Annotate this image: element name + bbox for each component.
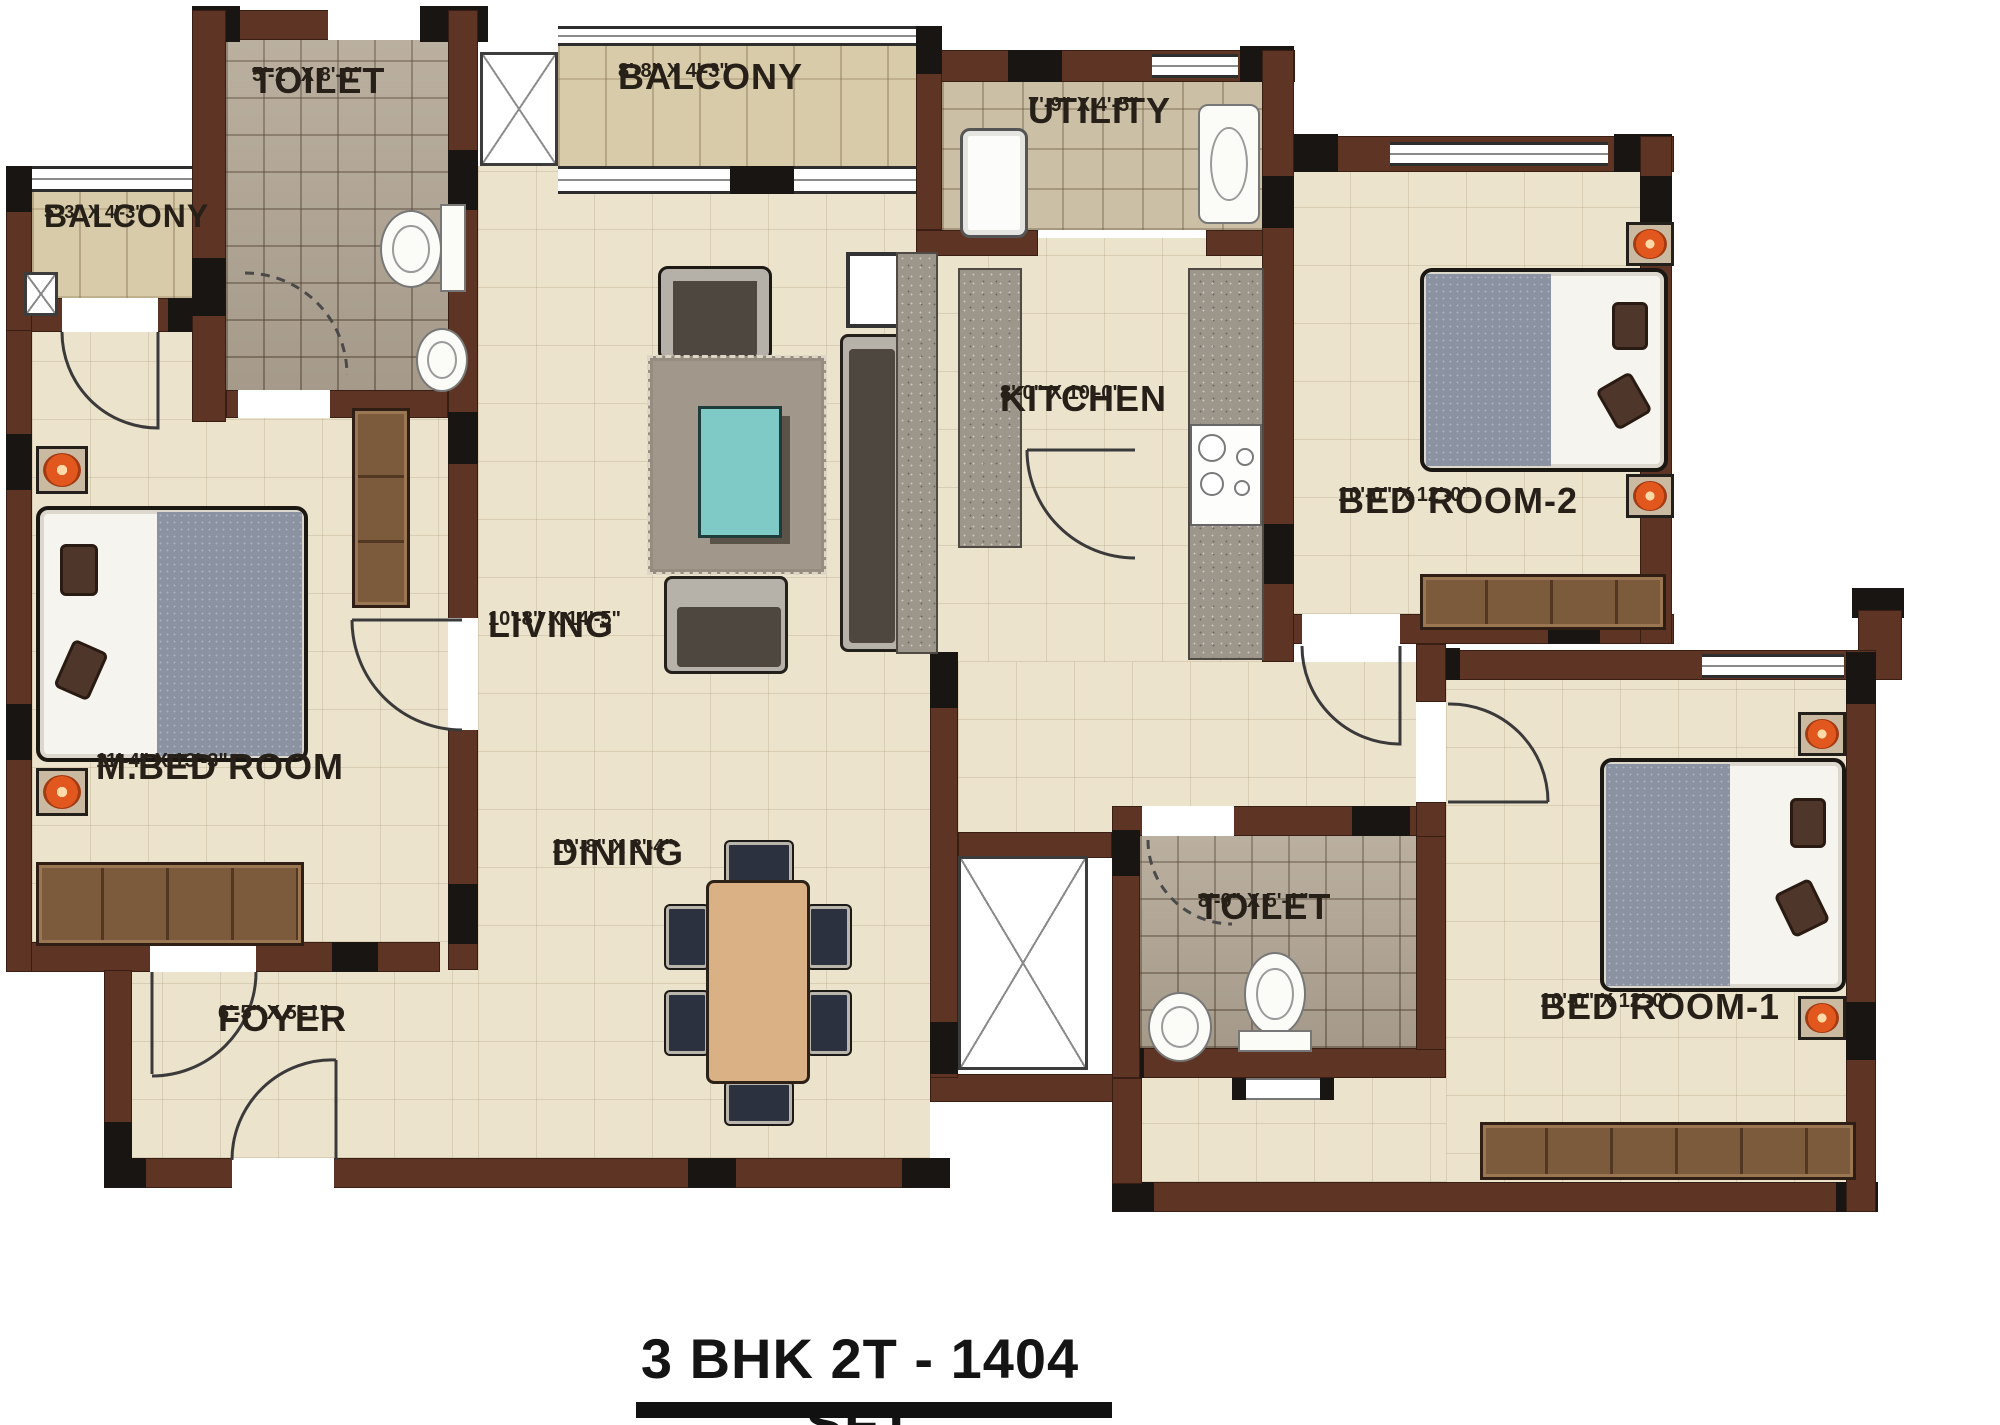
door-kitchen-passage	[1027, 450, 1135, 558]
door-mbedroom	[352, 620, 462, 730]
room-dims: 10'-8" X 14'-5"	[488, 608, 621, 631]
room-dims: 10'-0" X 12'-0"	[1338, 484, 1471, 507]
floor-plan: TOILET 5'-1" X 8'-0" BALCONY 8'-8" X 4'-…	[0, 0, 2000, 1425]
title-underline	[636, 1402, 1112, 1418]
room-dims: 6'-5" X 5'-1"	[218, 1002, 329, 1025]
room-dims: 8'-8" X 4'-3"	[618, 60, 729, 83]
door-swing-overlay	[0, 0, 2000, 1425]
room-dims: 10'-0" X 12'-0"	[1540, 990, 1673, 1013]
room-dims: 5'-1" X 8'-0"	[252, 64, 363, 87]
room-dims: 11'-4" X 13'-3"	[96, 750, 228, 773]
door-main-entrance	[232, 1060, 336, 1160]
room-dims: 8'-0" X 10'-0"	[1000, 382, 1122, 405]
door-bedroom2	[1302, 646, 1400, 744]
door-balcony-left	[62, 332, 158, 428]
room-dims: 7'-9" X 4'-5"	[1028, 94, 1139, 117]
door-bedroom1	[1448, 704, 1548, 802]
room-dims: 5'-3" X 4'-3"	[44, 202, 144, 223]
room-dims: 10'-8" X 8'-4"	[552, 836, 674, 859]
door-swing-toilet-top	[245, 273, 347, 375]
room-dims: 8'-0" X 5'-1"	[1198, 890, 1309, 913]
